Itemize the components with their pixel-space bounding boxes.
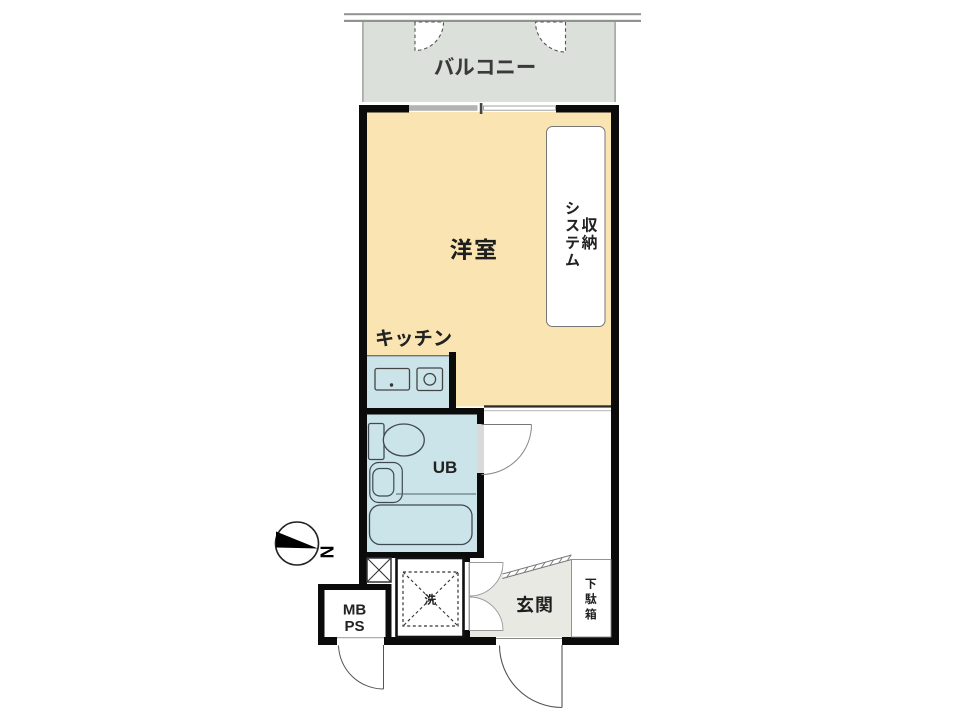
svg-text:UB: UB (433, 458, 458, 477)
svg-text:PS: PS (344, 618, 364, 635)
svg-text:N: N (317, 546, 337, 559)
svg-text:MB: MB (343, 602, 366, 619)
